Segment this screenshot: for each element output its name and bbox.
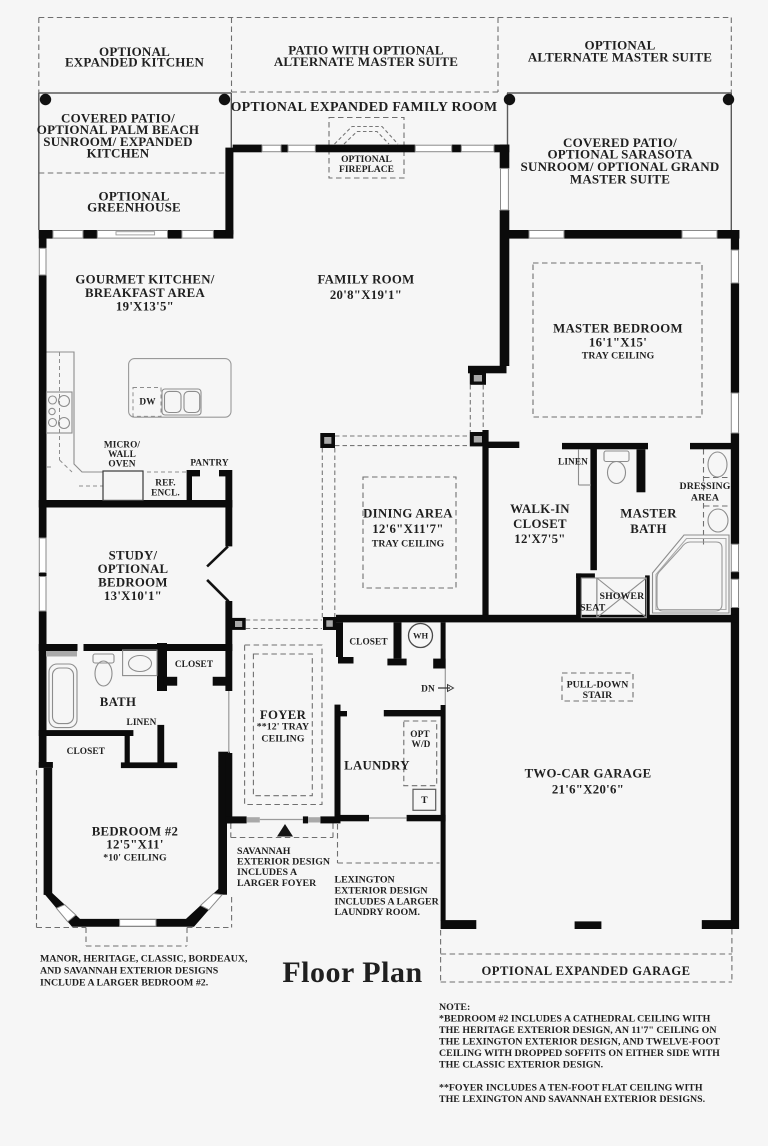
svg-text:BATH: BATH: [630, 522, 667, 536]
svg-text:13'X10'1": 13'X10'1": [104, 589, 162, 603]
svg-text:WH: WH: [413, 631, 429, 641]
svg-text:16'1"X15': 16'1"X15': [589, 336, 647, 350]
svg-text:OVEN: OVEN: [108, 460, 135, 470]
svg-text:BEDROOM #2: BEDROOM #2: [92, 825, 179, 839]
svg-text:CEILING WITH DROPPED SOFFITS O: CEILING WITH DROPPED SOFFITS ON EITHER S…: [439, 1048, 720, 1059]
svg-text:GREENHOUSE: GREENHOUSE: [87, 200, 181, 215]
svg-text:LINEN: LINEN: [127, 718, 157, 728]
svg-text:12'5"X11': 12'5"X11': [106, 838, 163, 852]
svg-text:DN: DN: [421, 685, 435, 695]
svg-text:T: T: [421, 795, 428, 806]
svg-text:GOURMET KITCHEN/: GOURMET KITCHEN/: [75, 273, 214, 287]
svg-text:FOYER: FOYER: [260, 708, 307, 722]
svg-text:FIREPLACE: FIREPLACE: [339, 165, 394, 175]
svg-text:PULL-DOWN: PULL-DOWN: [567, 680, 629, 691]
svg-text:21'6"X20'6": 21'6"X20'6": [552, 783, 624, 797]
svg-text:SHOWER: SHOWER: [600, 591, 646, 602]
svg-text:12'6"X11'7": 12'6"X11'7": [372, 522, 444, 536]
svg-text:STAIR: STAIR: [583, 690, 614, 701]
svg-text:Floor Plan: Floor Plan: [282, 956, 422, 989]
svg-text:LAUNDRY ROOM.: LAUNDRY ROOM.: [335, 907, 421, 918]
svg-text:STUDY/: STUDY/: [109, 549, 158, 563]
svg-text:EXTERIOR DESIGN: EXTERIOR DESIGN: [335, 886, 428, 897]
svg-text:W/D: W/D: [412, 740, 431, 750]
svg-text:THE LEXINGTON AND SAVANNAH EXT: THE LEXINGTON AND SAVANNAH EXTERIOR DESI…: [439, 1094, 706, 1105]
svg-text:CEILING: CEILING: [261, 734, 304, 745]
svg-text:AND SAVANNAH EXTERIOR DESIGNS: AND SAVANNAH EXTERIOR DESIGNS: [40, 966, 219, 977]
svg-text:ALTERNATE MASTER SUITE: ALTERNATE MASTER SUITE: [528, 50, 712, 65]
svg-text:BREAKFAST AREA: BREAKFAST AREA: [85, 286, 205, 300]
svg-text:THE HERITAGE EXTERIOR DESIGN,: THE HERITAGE EXTERIOR DESIGN, AN 11'7" C…: [439, 1025, 716, 1036]
svg-text:INCLUDE A LARGER BEDROOM #2.: INCLUDE A LARGER BEDROOM #2.: [40, 978, 209, 989]
svg-text:INCLUDES A LARGER: INCLUDES A LARGER: [335, 897, 440, 908]
svg-text:20'8"X19'1": 20'8"X19'1": [330, 288, 402, 302]
svg-text:CLOSET: CLOSET: [175, 660, 214, 670]
svg-text:EXTERIOR DESIGN: EXTERIOR DESIGN: [237, 857, 330, 868]
svg-text:REF.: REF.: [155, 479, 175, 489]
svg-text:CLOSET: CLOSET: [349, 638, 388, 648]
svg-text:FAMILY ROOM: FAMILY ROOM: [317, 273, 414, 287]
svg-text:WALL: WALL: [108, 450, 136, 460]
svg-text:ALTERNATE MASTER SUITE: ALTERNATE MASTER SUITE: [274, 54, 458, 69]
svg-text:SAVANNAH: SAVANNAH: [237, 846, 291, 857]
svg-text:ENCL.: ENCL.: [151, 489, 180, 499]
svg-text:EXPANDED KITCHEN: EXPANDED KITCHEN: [65, 55, 205, 70]
svg-text:BATH: BATH: [100, 695, 137, 709]
svg-text:THE CLASSIC EXTERIOR DESIGN.: THE CLASSIC EXTERIOR DESIGN.: [439, 1060, 604, 1071]
svg-text:19'X13'5": 19'X13'5": [116, 300, 174, 314]
svg-text:LINEN: LINEN: [558, 458, 588, 468]
svg-text:TWO-CAR GARAGE: TWO-CAR GARAGE: [525, 767, 652, 781]
svg-text:MANOR, HERITAGE, CLASSIC, BORD: MANOR, HERITAGE, CLASSIC, BORDEAUX,: [40, 954, 248, 965]
svg-text:LARGER FOYER: LARGER FOYER: [237, 878, 317, 889]
svg-text:MICRO/: MICRO/: [104, 441, 141, 451]
svg-text:MASTER: MASTER: [620, 507, 677, 521]
svg-text:BEDROOM: BEDROOM: [98, 576, 168, 590]
svg-text:LAUNDRY: LAUNDRY: [344, 759, 410, 773]
svg-text:*10' CEILING: *10' CEILING: [103, 853, 167, 864]
svg-text:NOTE:: NOTE:: [439, 1002, 470, 1013]
svg-text:**FOYER INCLUDES A TEN-FOOT FL: **FOYER INCLUDES A TEN-FOOT FLAT CEILING…: [439, 1083, 703, 1094]
svg-text:LEXINGTON: LEXINGTON: [335, 875, 395, 886]
svg-text:MASTER SUITE: MASTER SUITE: [570, 171, 670, 186]
svg-text:DINING AREA: DINING AREA: [363, 507, 453, 521]
svg-text:12'X7'5": 12'X7'5": [514, 532, 565, 546]
svg-text:CLOSET: CLOSET: [513, 517, 567, 531]
svg-text:SEAT: SEAT: [580, 603, 606, 614]
svg-text:WALK-IN: WALK-IN: [510, 502, 570, 516]
svg-text:CLOSET: CLOSET: [67, 747, 106, 757]
svg-text:MASTER BEDROOM: MASTER BEDROOM: [553, 322, 683, 336]
svg-text:OPTIONAL: OPTIONAL: [341, 155, 392, 165]
svg-text:PANTRY: PANTRY: [190, 459, 229, 469]
svg-text:OPT: OPT: [410, 730, 430, 740]
svg-text:**12' TRAY: **12' TRAY: [257, 722, 309, 733]
svg-text:TRAY CEILING: TRAY CEILING: [372, 539, 445, 550]
svg-text:DW: DW: [139, 398, 156, 408]
svg-text:*BEDROOM #2 INCLUDES A CATHEDR: *BEDROOM #2 INCLUDES A CATHEDRAL CEILING…: [439, 1014, 711, 1025]
svg-text:DRESSING: DRESSING: [680, 481, 731, 492]
svg-text:INCLUDES A: INCLUDES A: [237, 867, 298, 878]
svg-text:THE LEXINGTON EXTERIOR DESIGN,: THE LEXINGTON EXTERIOR DESIGN, AND TWELV…: [439, 1037, 720, 1048]
svg-text:AREA: AREA: [691, 493, 719, 504]
svg-text:OPTIONAL EXPANDED GARAGE: OPTIONAL EXPANDED GARAGE: [481, 964, 690, 978]
svg-text:TRAY CEILING: TRAY CEILING: [582, 351, 655, 362]
svg-text:OPTIONAL: OPTIONAL: [98, 562, 169, 576]
svg-text:KITCHEN: KITCHEN: [87, 146, 150, 161]
svg-text:OPTIONAL EXPANDED FAMILY ROOM: OPTIONAL EXPANDED FAMILY ROOM: [231, 100, 498, 115]
